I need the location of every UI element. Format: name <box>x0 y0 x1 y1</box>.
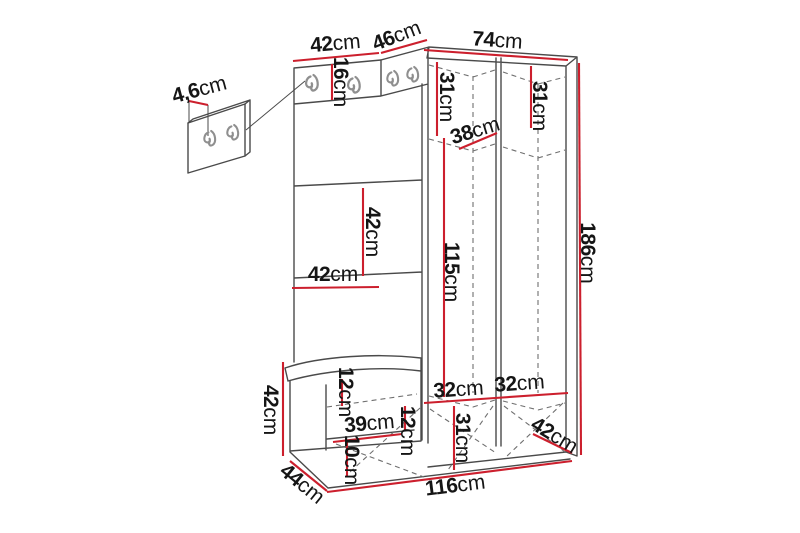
dim-label-total-height: 186cm <box>576 222 599 284</box>
coat-hook-icon <box>204 131 215 145</box>
dim-label-interior-height: 115cm <box>440 242 463 302</box>
dim-label-bottom-section: 31cm <box>451 413 474 463</box>
coat-hook-icon <box>407 67 418 81</box>
dim-label-bench-lower-gap: 10cm <box>340 435 363 485</box>
dim-line-shelf-width <box>292 287 379 288</box>
coat-hook-icon <box>387 71 398 85</box>
furniture-dimension-diagram: 42cm 46cm 74cm 4,6cm 16cm 31cm 31cm 38cm… <box>0 0 800 533</box>
diagram-canvas: 42cm 46cm 74cm 4,6cm 16cm 31cm 31cm 38cm… <box>0 0 800 533</box>
dimension-labels: 42cm 46cm 74cm 4,6cm 16cm 31cm 31cm 38cm… <box>169 16 599 509</box>
detail-pointer-line <box>246 81 305 130</box>
dim-extension-lines <box>189 101 208 136</box>
dim-label-top-width-left: 42cm <box>309 30 361 57</box>
coat-hook-icon <box>306 75 318 91</box>
dim-label-bench-top-gap: 12cm <box>334 367 357 417</box>
dim-label-mid-bottom-gap: 12cm <box>396 406 419 456</box>
dim-label-shelf-gap: 42cm <box>361 207 384 257</box>
dim-label-bench-depth: 44cm <box>275 459 329 509</box>
dim-label-bench-height: 42cm <box>259 385 282 435</box>
dim-label-bench-inner-width: 39cm <box>343 410 395 437</box>
coat-hook-icon <box>227 125 238 139</box>
dim-label-shelf-width: 42cm <box>308 263 358 286</box>
dim-label-bottom-shelf-right: 32cm <box>494 370 546 396</box>
panel-thickness-edges <box>188 100 250 156</box>
dim-label-right-depth: 42cm <box>527 413 582 459</box>
dim-label-top-width-corner: 46cm <box>369 16 424 56</box>
dim-label-top-width-right: 74cm <box>472 27 524 53</box>
dim-label-upper-section-left: 31cm <box>435 72 458 122</box>
dim-label-bottom-shelf-left: 32cm <box>433 376 485 402</box>
dim-label-upper-section-right: 31cm <box>528 81 551 131</box>
dim-label-hook-strip-height: 16cm <box>329 57 352 107</box>
